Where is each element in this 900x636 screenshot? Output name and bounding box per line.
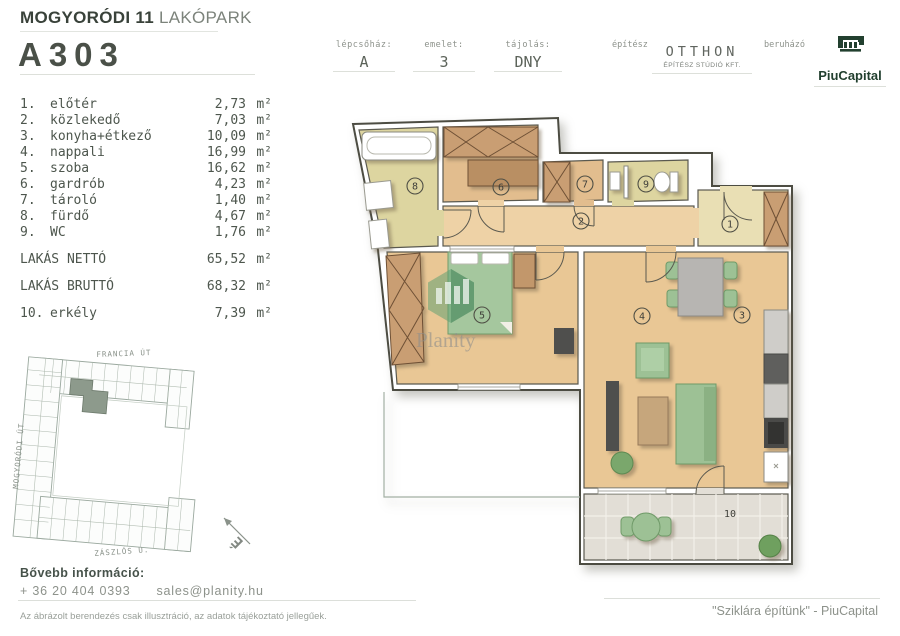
cell-underline [814,86,886,87]
architect-logo: OTTHON ÉPÍTÉSZ STÚDIÓ KFT. [652,44,752,74]
room-label-5: 5 [479,311,485,322]
washing-machine [364,181,394,211]
cell-underline [413,71,475,72]
coffee-table [638,397,668,445]
project-suffix: LAKÓPARK [154,8,252,27]
bathroom-sink [369,219,390,249]
watermark-text: Planity [416,328,476,352]
pillow [451,253,478,264]
room-label-1: 1 [727,220,733,231]
room-label-7: 7 [582,180,588,191]
net-total-row: LAKÁS NETTÓ65,52m² [20,252,272,268]
street-label-zaszlos: ZÁSZLÓS U. [94,545,150,558]
north-compass: É [224,518,250,553]
header-cell-staircase: lépcsőház: A [333,40,395,72]
developer-label: beruházó [764,40,805,50]
site-plan: FRANCIA ÚT MOGYORÓDI ÚT ZÁSZLÓS U. É [12,346,268,566]
footer-divider-right [604,598,880,599]
room-row: 5.szoba16,62m² [20,161,272,177]
room-label-6: 6 [498,183,504,194]
contact-row: + 36 20 404 0393sales@planity.hu [20,584,290,598]
more-info-label: Bővebb információ: [20,566,145,580]
cell-underline [494,71,562,72]
bedroom-cabinet [514,254,535,288]
room-row: 4.nappali16,99m² [20,145,272,161]
room-label-8: 8 [412,182,418,193]
bedroom-desk [554,328,574,354]
balcony-floor [584,494,788,560]
room-row: 9.WC1,76m² [20,225,272,241]
gross-total-row: LAKÁS BRUTTÓ68,32m² [20,279,272,295]
footer-divider-left [18,600,416,601]
cell-underline [652,73,752,74]
kitchen-sink [764,452,788,482]
plant [611,452,633,474]
architect-name: OTTHON [652,44,752,60]
orientation-value: DNY [494,53,562,71]
staircase-value: A [333,53,395,71]
room-row: 8.fürdő4,67m² [20,209,272,225]
room-row: 1.előtér2,73m² [20,97,272,113]
room-row: 2.közlekedő7,03m² [20,113,272,129]
street-label-francia: FRANCIA ÚT [96,348,151,359]
architect-label: építész [612,40,648,50]
floor-value: 3 [413,53,475,71]
toilet [654,172,678,192]
room-label-4: 4 [639,312,645,323]
room-row: 6.gardrób4,23m² [20,177,272,193]
room-hallway-floor [443,206,694,246]
orientation-label: tájolás: [494,40,562,50]
email-address: sales@planity.hu [156,584,263,598]
phone-number: + 36 20 404 0393 [20,584,130,598]
company-slogan: "Sziklára építünk" - PiuCapital [712,604,878,618]
disclaimer-text: Az ábrázolt berendezés csak illusztráció… [20,611,327,622]
sofa [676,384,716,464]
staircase-label: lépcsőház: [333,40,395,50]
entrance-door-gap [720,186,752,192]
armchair [636,343,669,378]
kitchen-counter [764,310,788,482]
room-label-10: 10 [724,509,736,520]
wc-door-leaf [624,166,628,198]
room-label-3: 3 [739,311,745,322]
header-cell-orientation: tájolás: DNY [494,40,562,72]
floor-plan: Planity 1 2 3 4 5 6 7 8 9 10 [340,100,838,570]
cell-underline [333,71,395,72]
room-row: 3.konyha+étkező10,09m² [20,129,272,145]
piucapital-icon [814,34,886,62]
title-divider [20,31,218,32]
tv-board [606,381,619,451]
project-name: MOGYORÓDI 11 [20,8,154,27]
apartment-id-divider [20,74,255,75]
slab-edge-line [384,392,580,497]
pillow [482,253,509,264]
entry-wardrobe [764,192,788,246]
balcony-plant [759,535,781,557]
balcony-row: 10.erkély7,39m² [20,306,272,322]
bathtub [362,132,436,160]
storage-wardrobe [544,162,570,202]
page-title: MOGYORÓDI 11 LAKÓPARK [20,8,252,28]
room-label-2: 2 [578,217,584,228]
room-list: 1.előtér2,73m² 2.közlekedő7,03m² 3.konyh… [20,97,272,322]
architect-subtitle: ÉPÍTÉSZ STÚDIÓ KFT. [652,62,752,69]
header-cell-floor: emelet: 3 [413,40,475,72]
floor-label: emelet: [413,40,475,50]
room-row: 7.tároló1,40m² [20,193,272,209]
wc-sink [610,172,620,190]
apartment-id: A303 [18,36,125,74]
room-label-9: 9 [643,180,649,191]
dining-table [678,258,723,316]
compass-letter: É [227,533,247,553]
developer-logo: PiuCapital [814,34,886,87]
developer-name: PiuCapital [814,68,886,83]
